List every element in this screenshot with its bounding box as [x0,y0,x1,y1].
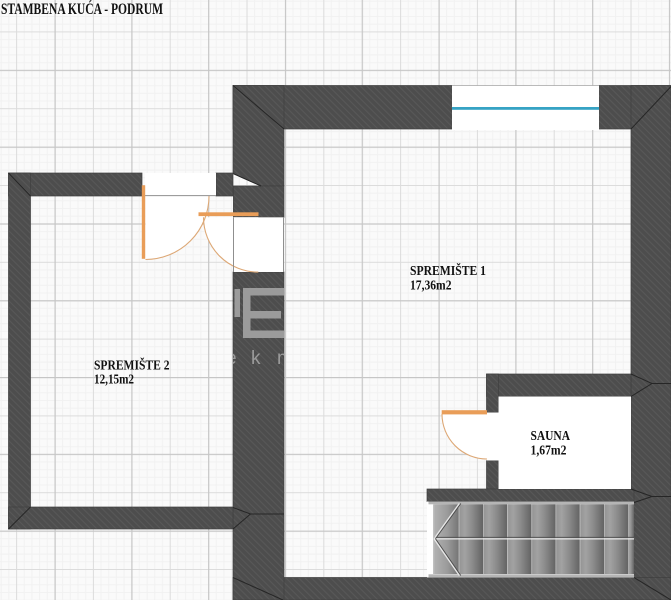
svg-text:SPREMIŠTE 1: SPREMIŠTE 1 [410,262,486,279]
svg-text:STAMBENA KUĆA - PODRUM: STAMBENA KUĆA - PODRUM [1,1,163,18]
svg-text:SPREMIŠTE 2: SPREMIŠTE 2 [94,357,170,374]
svg-text:12,15m2: 12,15m2 [94,373,134,388]
svg-text:SAUNA: SAUNA [531,429,571,444]
svg-text:1,67m2: 1,67m2 [531,443,567,458]
svg-text:k: k [251,348,261,369]
svg-text:17,36m2: 17,36m2 [410,279,452,294]
